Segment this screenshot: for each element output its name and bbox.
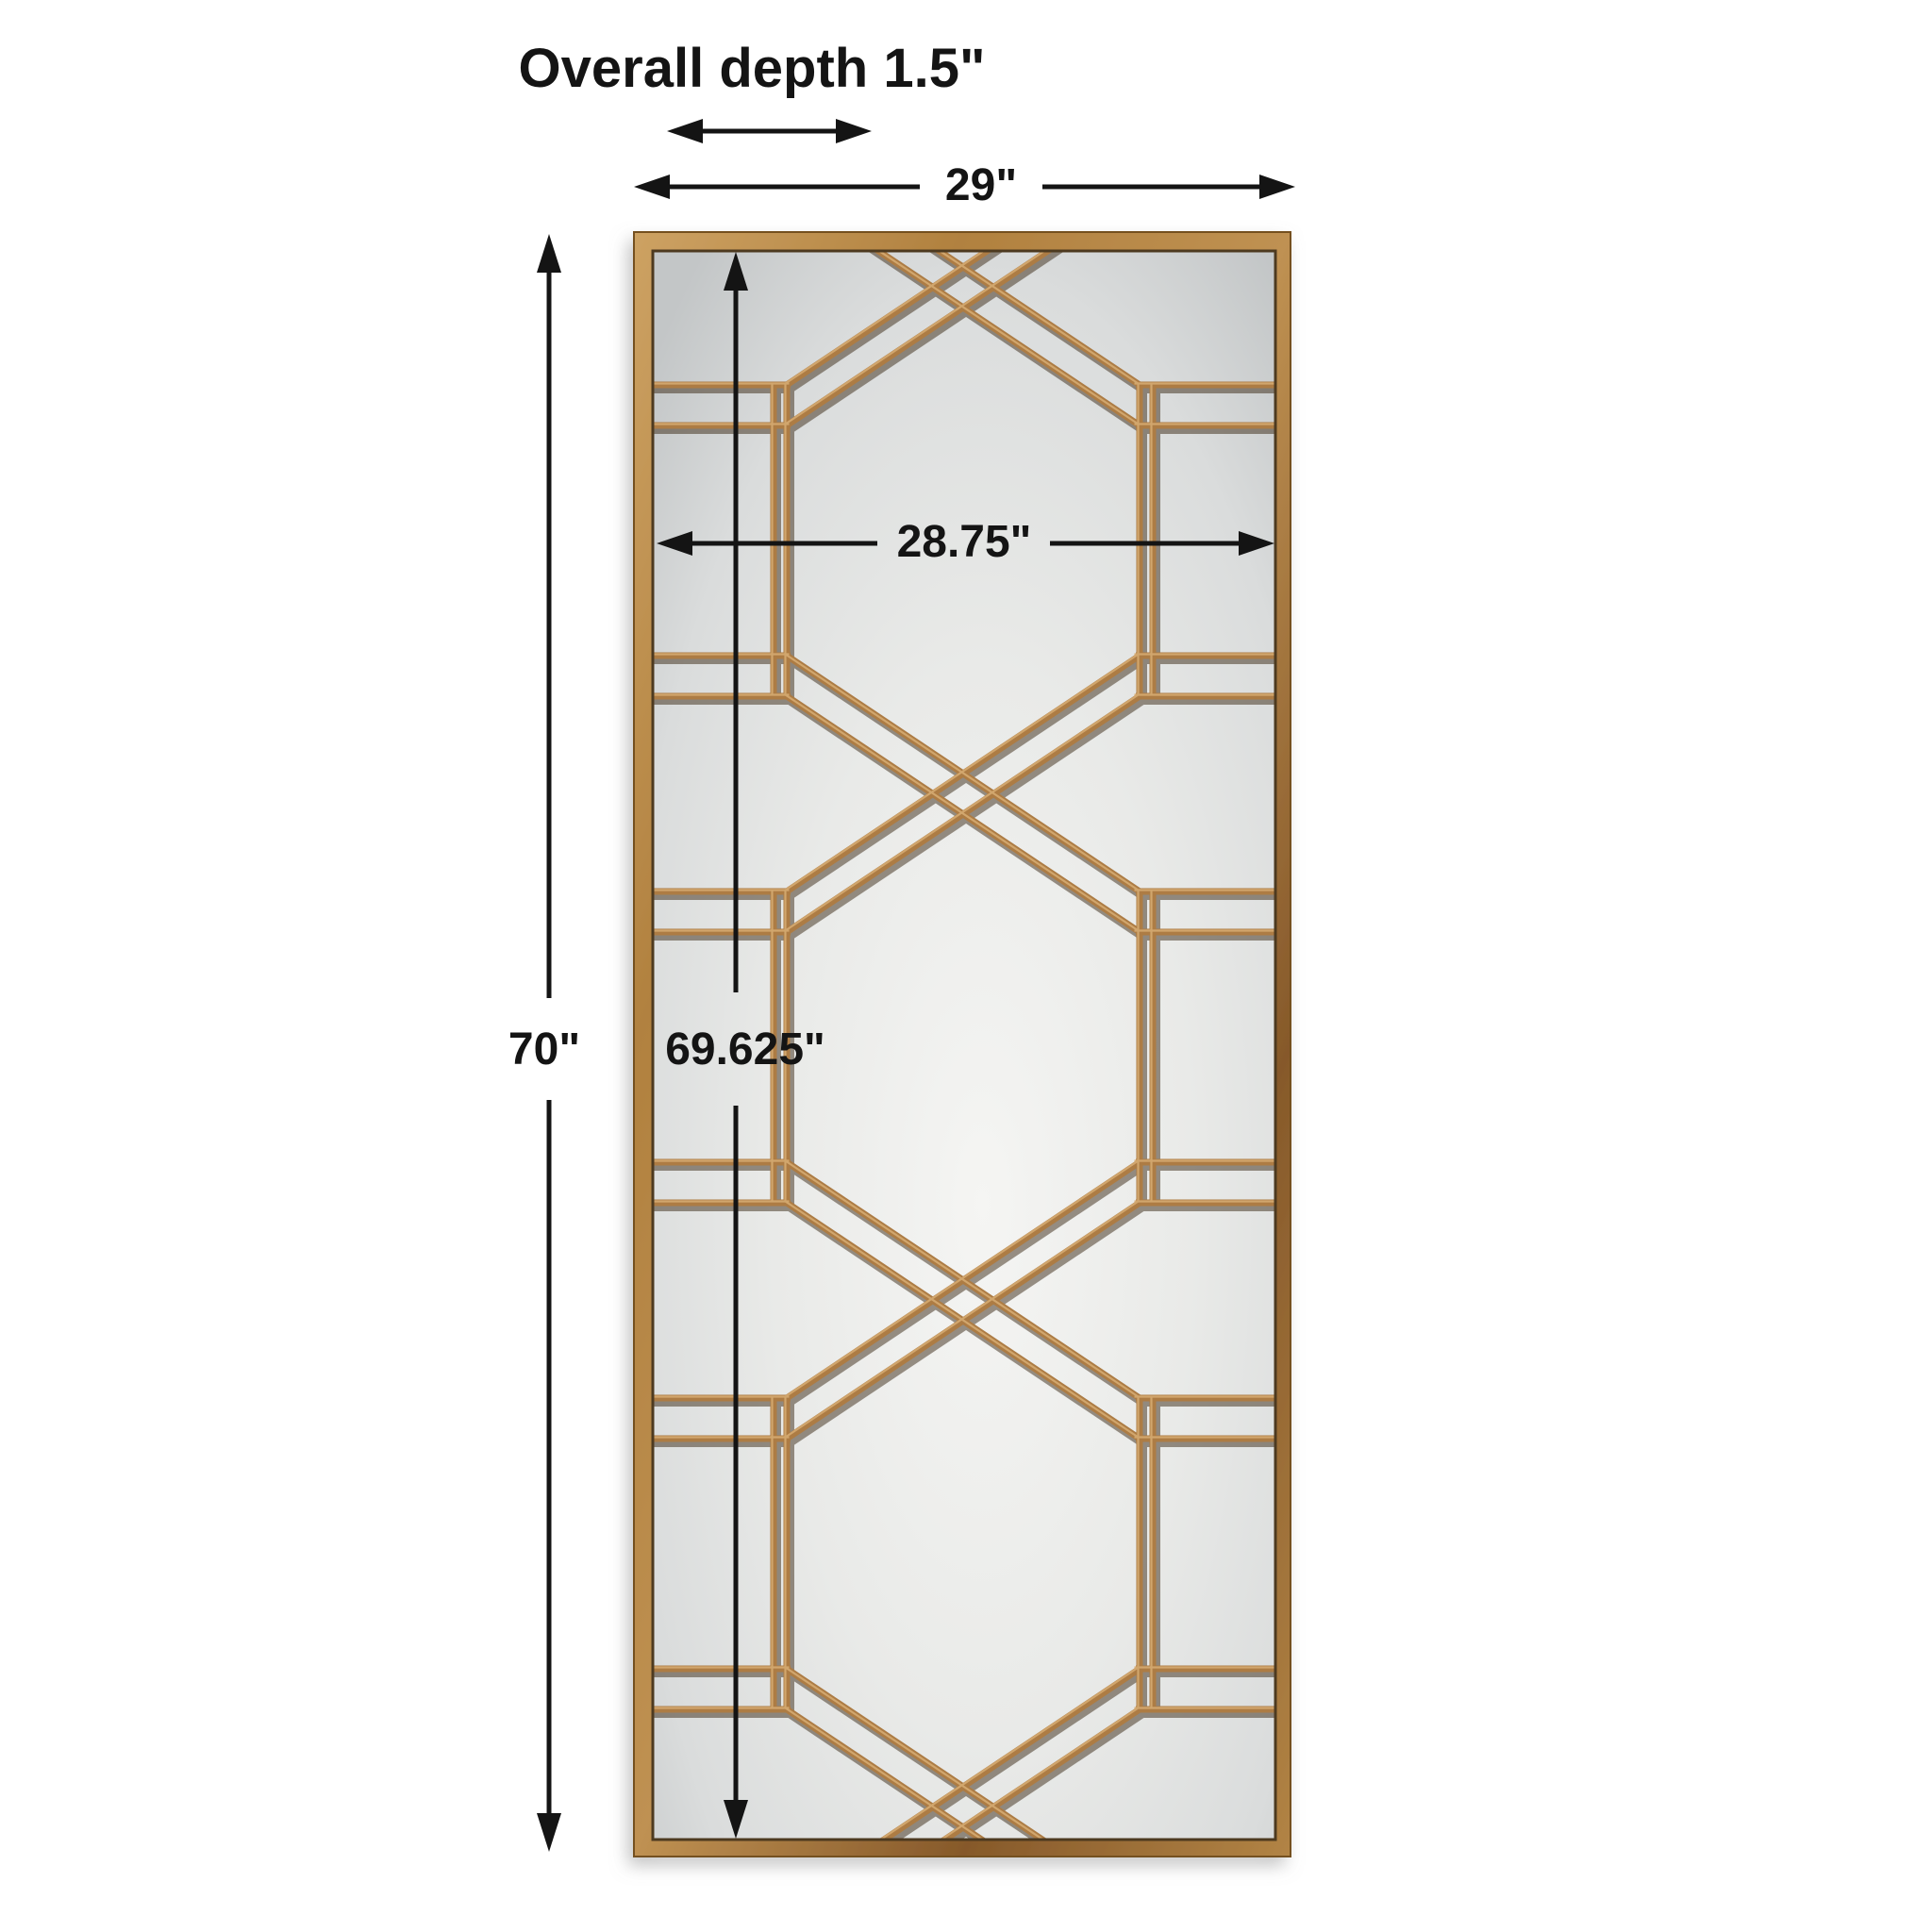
- inner-width-label: 28.75": [897, 517, 1032, 567]
- inner-height-label: 69.625": [665, 1024, 825, 1074]
- overall-depth-title: Overall depth 1.5": [519, 38, 986, 99]
- product-dimension-diagram: Overall depth 1.5" 29" 28.75": [0, 0, 1932, 1932]
- overall-width-label: 29": [945, 160, 1017, 210]
- overall-height-label: 70": [508, 1024, 580, 1074]
